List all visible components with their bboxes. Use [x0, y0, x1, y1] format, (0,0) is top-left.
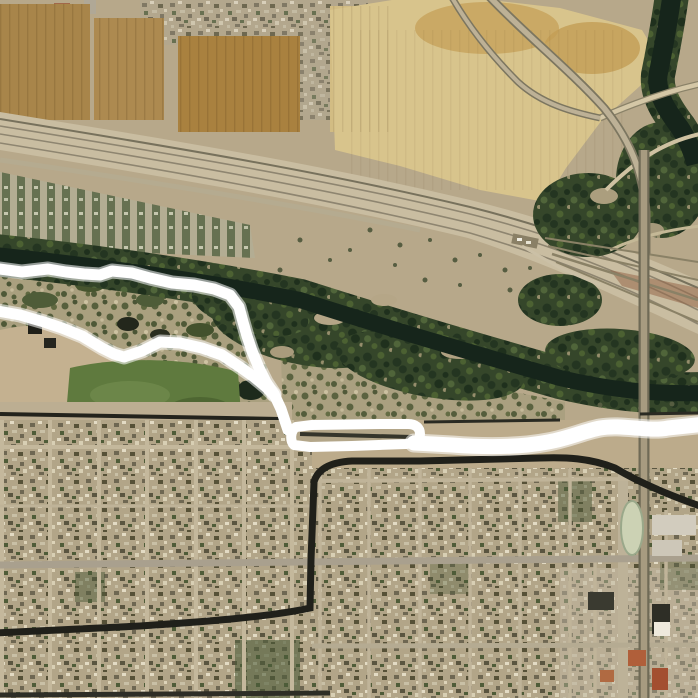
red-building: [652, 668, 668, 690]
red-building: [628, 650, 646, 666]
dark-building: [44, 338, 56, 348]
red-building: [600, 670, 614, 682]
oval-feature: [621, 501, 643, 555]
dark-building: [588, 592, 614, 610]
map-viewport[interactable]: [0, 0, 698, 698]
border-road-west: [0, 402, 292, 420]
satellite-map: [0, 0, 698, 698]
white-building: [654, 622, 670, 636]
